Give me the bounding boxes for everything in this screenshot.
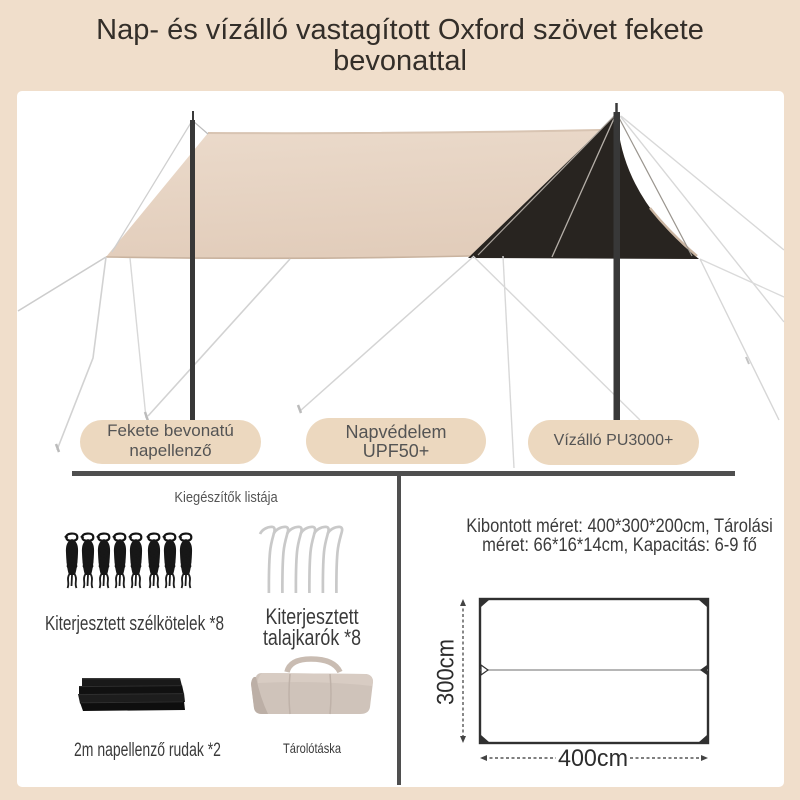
- svg-text:400cm: 400cm: [558, 745, 628, 772]
- svg-text:300cm: 300cm: [432, 639, 459, 705]
